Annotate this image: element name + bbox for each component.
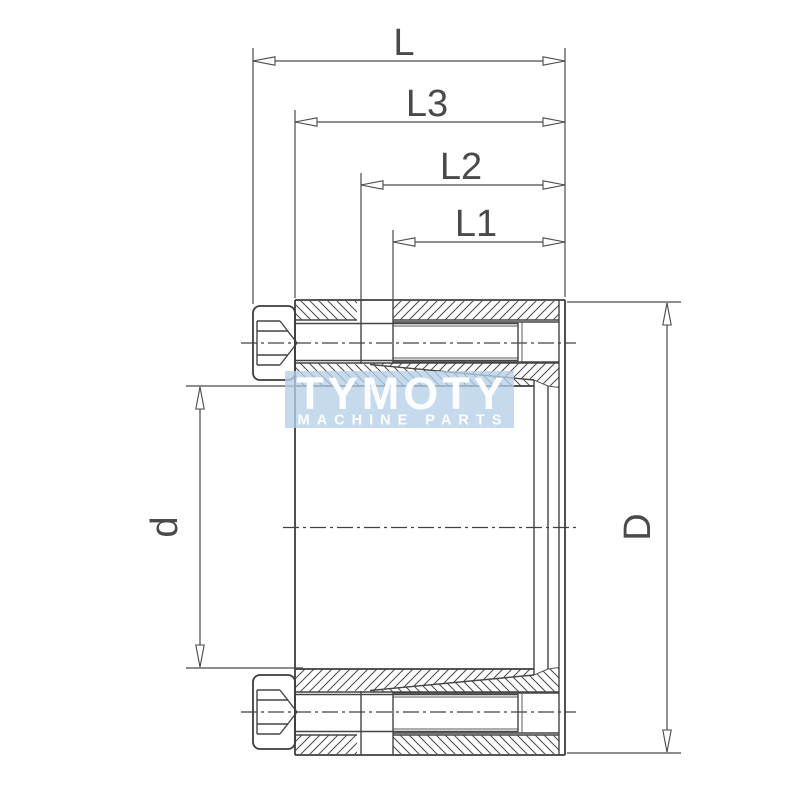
dimension-label-L3: L3 (406, 83, 448, 125)
arrow-up (663, 303, 671, 325)
dimension-label-D: D (617, 513, 659, 540)
dimension-label-L2: L2 (440, 146, 482, 188)
watermark-title: TYMOTY (296, 368, 508, 419)
dimension-d: d (144, 386, 303, 668)
arrow-right (543, 238, 565, 246)
watermark-subtitle: MACHINE PARTS (298, 413, 509, 429)
dimension-L1: L1 (393, 203, 565, 299)
arrow-right (543, 118, 565, 126)
dimension-D: D (567, 302, 681, 753)
arrow-left (253, 57, 275, 65)
arrow-left (393, 238, 415, 246)
arrow-down (663, 730, 671, 752)
dimension-L: L (253, 22, 565, 304)
watermark: TYMOTY MACHINE PARTS (285, 368, 514, 429)
dimension-label-d: d (144, 516, 186, 537)
locking-assembly-technical-drawing: L L3 L2 L1 d D TYMOTY (0, 0, 800, 800)
arrow-left (295, 118, 317, 126)
body-lower-half (241, 527, 576, 755)
dimension-L3: L3 (295, 83, 565, 298)
arrow-right (543, 181, 565, 189)
dimension-label-L: L (393, 22, 414, 64)
outer-ring-top-hatch (393, 301, 559, 320)
collar-top-hatch (296, 301, 357, 320)
drawing-page: L L3 L2 L1 d D TYMOTY (0, 0, 800, 800)
dimension-label-L1: L1 (455, 203, 497, 245)
arrow-right (543, 57, 565, 65)
arrow-left (361, 181, 383, 189)
arrow-down (196, 645, 204, 667)
arrow-up (196, 387, 204, 409)
